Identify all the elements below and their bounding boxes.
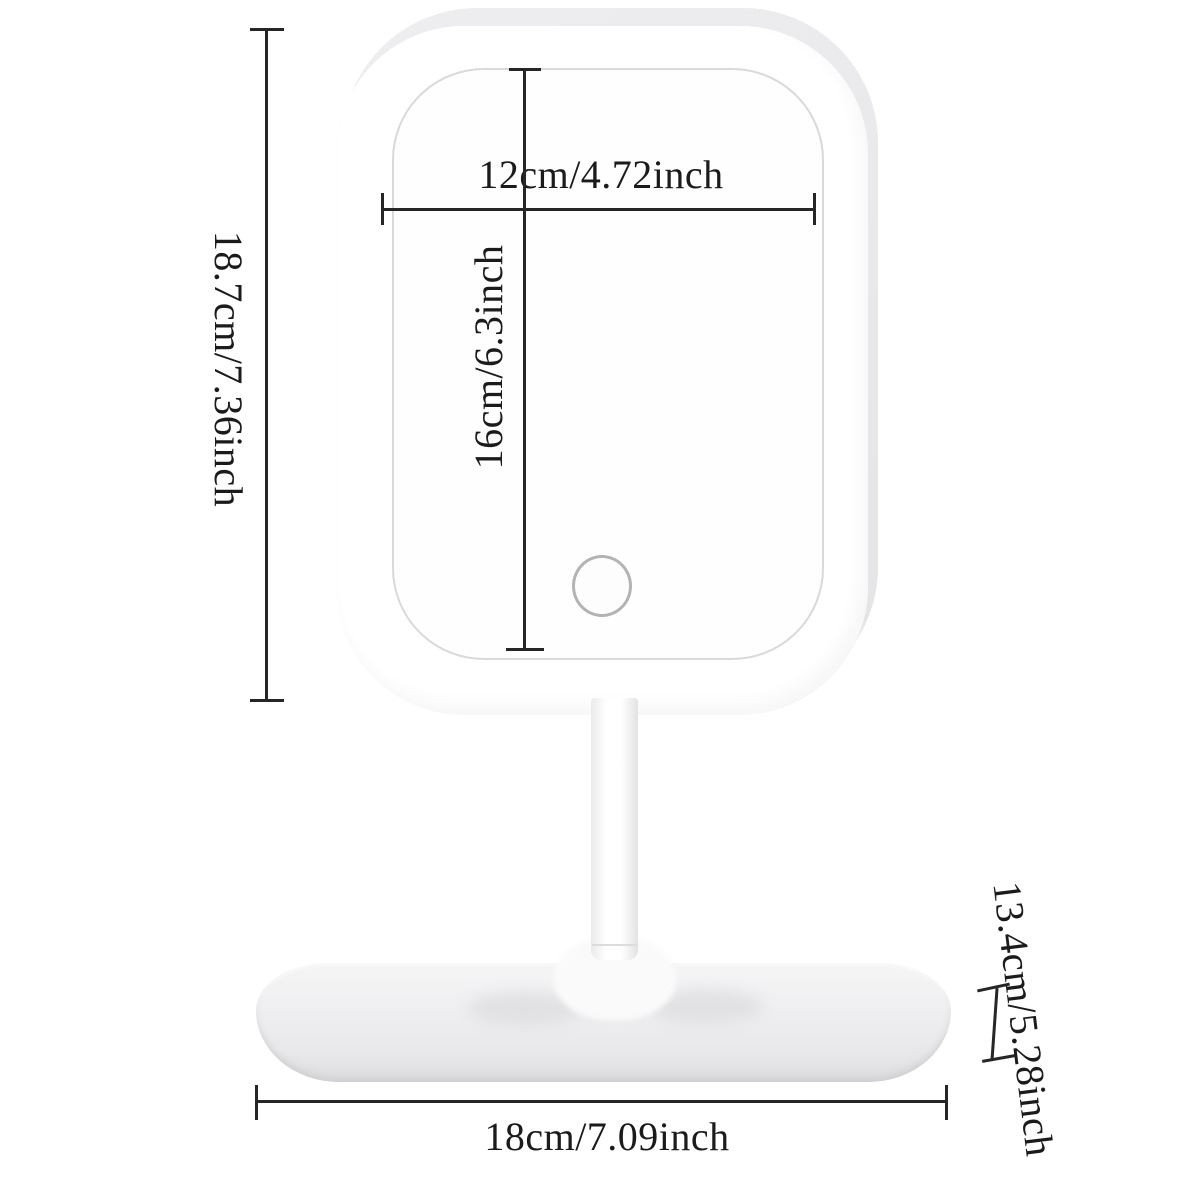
base-width-label: 18cm/7.09inch bbox=[484, 1116, 729, 1158]
product-dimension-diagram: 18.7cm/7.36inch 12cm/4.72inch 16cm/6.3in… bbox=[0, 0, 1189, 1182]
glass-width-right-tick bbox=[813, 193, 816, 225]
base-width-left-tick bbox=[255, 1085, 258, 1120]
glass-width-label: 12cm/4.72inch bbox=[478, 154, 723, 196]
glass-height-dimension-line bbox=[523, 70, 526, 651]
base-depth-label: 13.4cm/5.28inch bbox=[985, 879, 1060, 1158]
base-width-right-tick bbox=[945, 1085, 948, 1120]
stand-neck bbox=[591, 698, 638, 960]
glass-height-top-tick bbox=[509, 68, 541, 71]
frame-height-bottom-tick bbox=[250, 699, 284, 702]
base-depth-dimension-line bbox=[990, 988, 998, 1061]
glass-height-label: 16cm/6.3inch bbox=[468, 245, 510, 470]
base-width-dimension-line bbox=[256, 1100, 948, 1103]
glass-height-bottom-tick bbox=[506, 648, 544, 651]
touch-button bbox=[572, 555, 632, 617]
frame-height-top-tick bbox=[250, 28, 284, 31]
glass-width-dimension-line bbox=[382, 208, 816, 211]
glass-width-left-tick bbox=[381, 193, 384, 225]
frame-height-label: 18.7cm/7.36inch bbox=[207, 231, 249, 507]
stand-neck-seam bbox=[592, 944, 637, 946]
frame-height-dimension-line bbox=[265, 30, 268, 702]
